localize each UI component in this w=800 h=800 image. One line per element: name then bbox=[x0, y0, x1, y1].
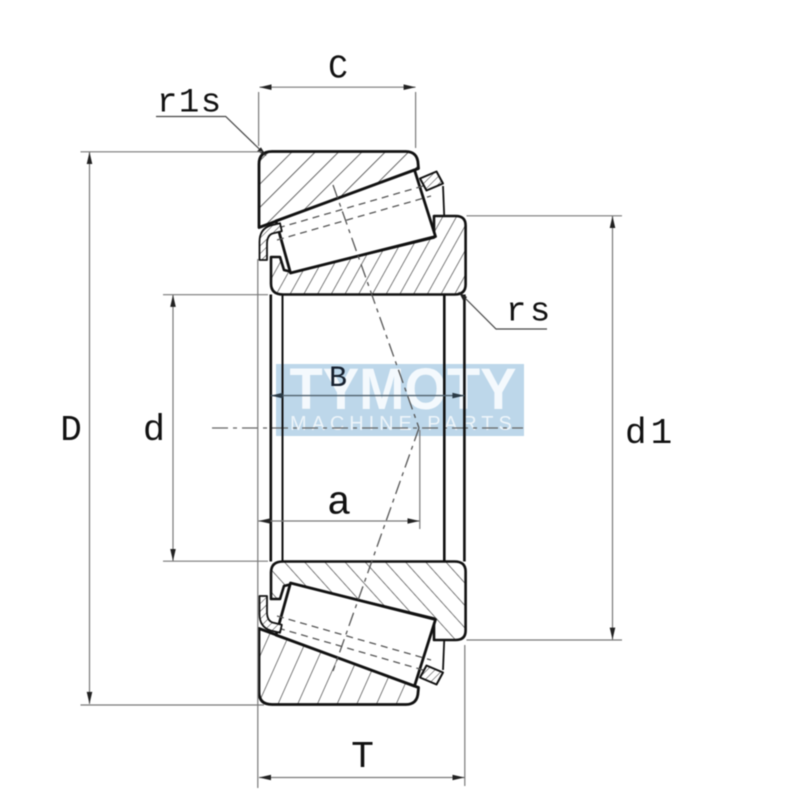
svg-text:MACHINE PARTS: MACHINE PARTS bbox=[290, 413, 516, 435]
svg-text:rs: rs bbox=[506, 294, 554, 332]
svg-text:T: T bbox=[351, 736, 374, 779]
svg-text:C: C bbox=[328, 51, 348, 88]
svg-text:d1: d1 bbox=[625, 413, 676, 454]
svg-text:d: d bbox=[143, 410, 165, 452]
svg-text:D: D bbox=[60, 410, 82, 451]
svg-text:a: a bbox=[327, 482, 351, 527]
svg-text:r1s: r1s bbox=[157, 85, 223, 123]
svg-text:B: B bbox=[329, 362, 347, 396]
